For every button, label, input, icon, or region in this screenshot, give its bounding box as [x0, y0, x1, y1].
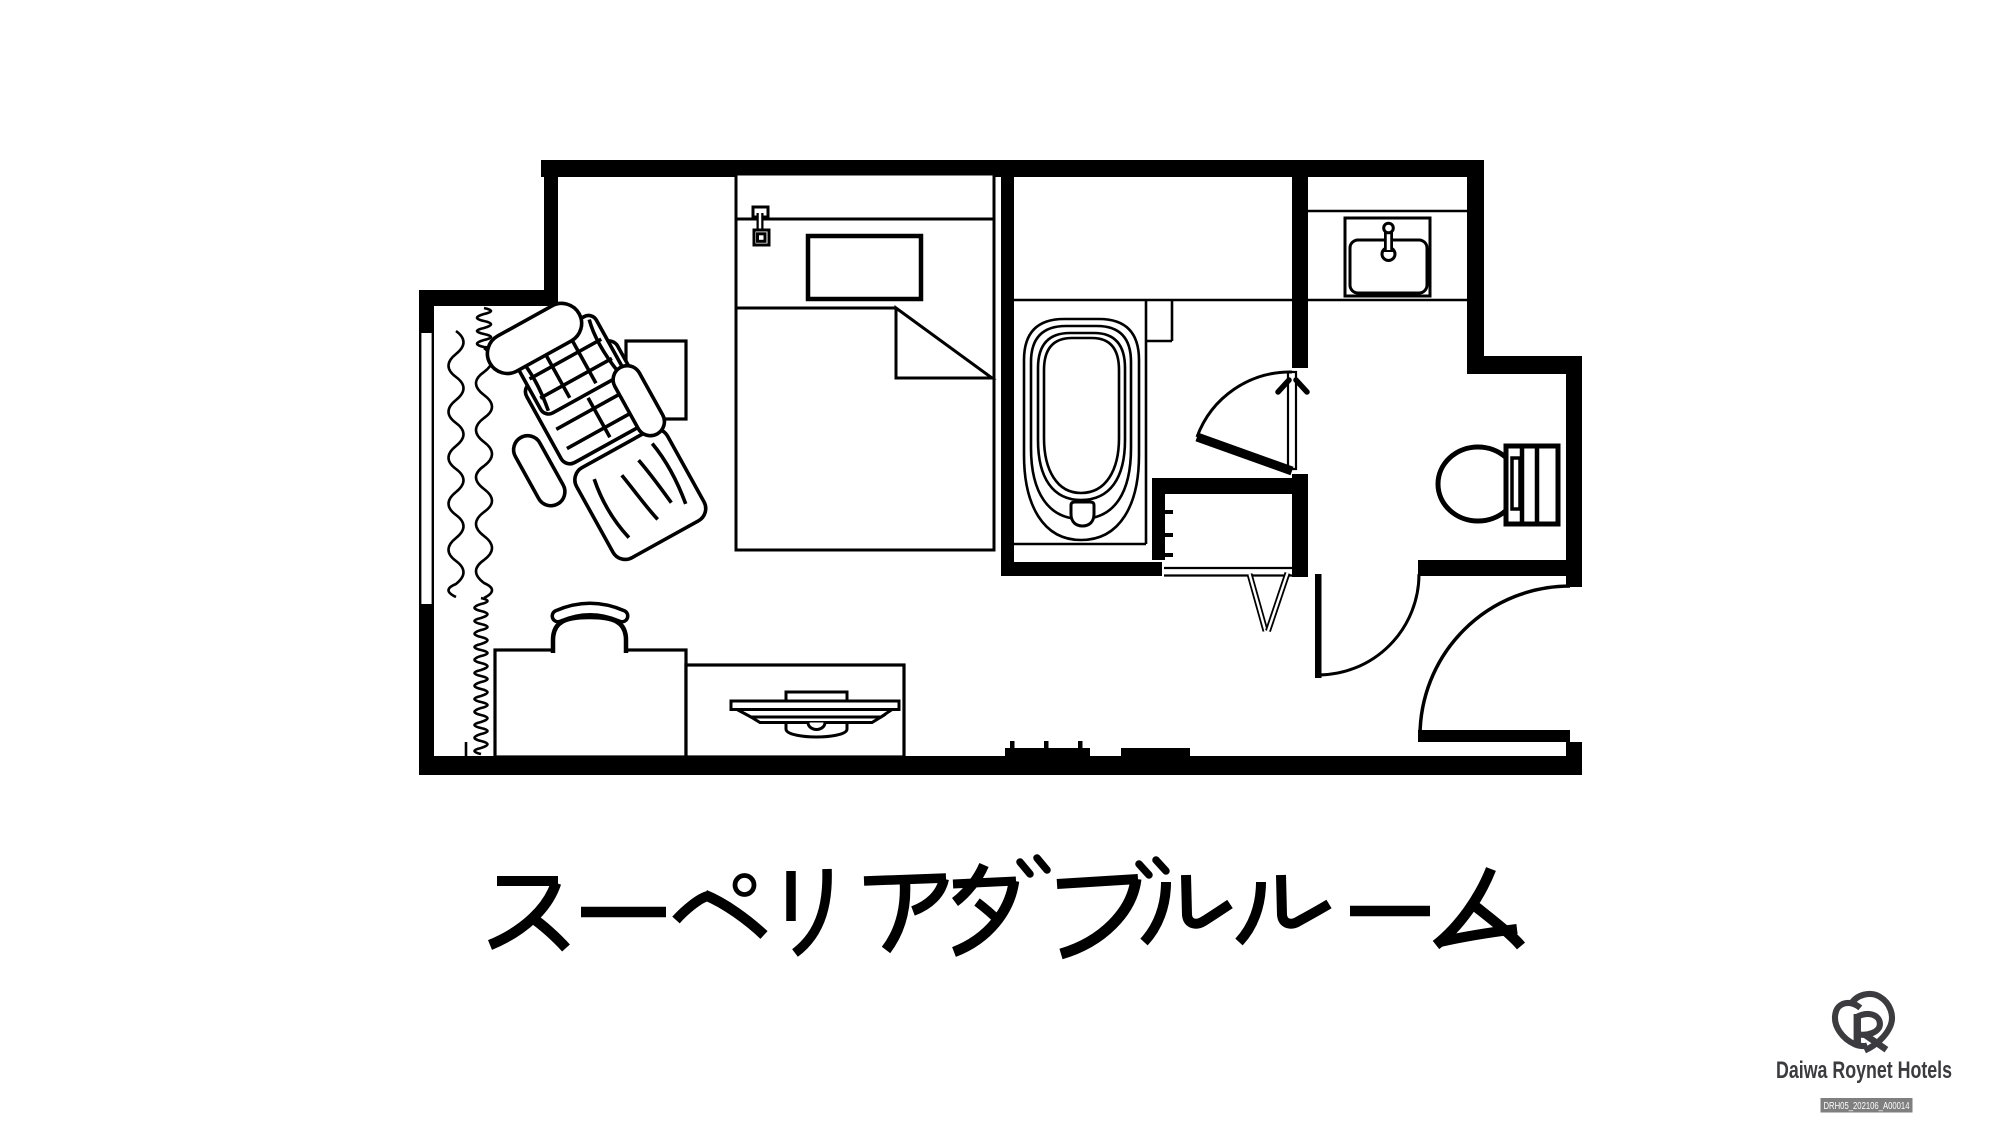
- svg-text:Daiwa Roynet Hotels: Daiwa Roynet Hotels: [1776, 1057, 1952, 1084]
- svg-text:DRH05_202106_A00014: DRH05_202106_A00014: [1824, 1101, 1910, 1112]
